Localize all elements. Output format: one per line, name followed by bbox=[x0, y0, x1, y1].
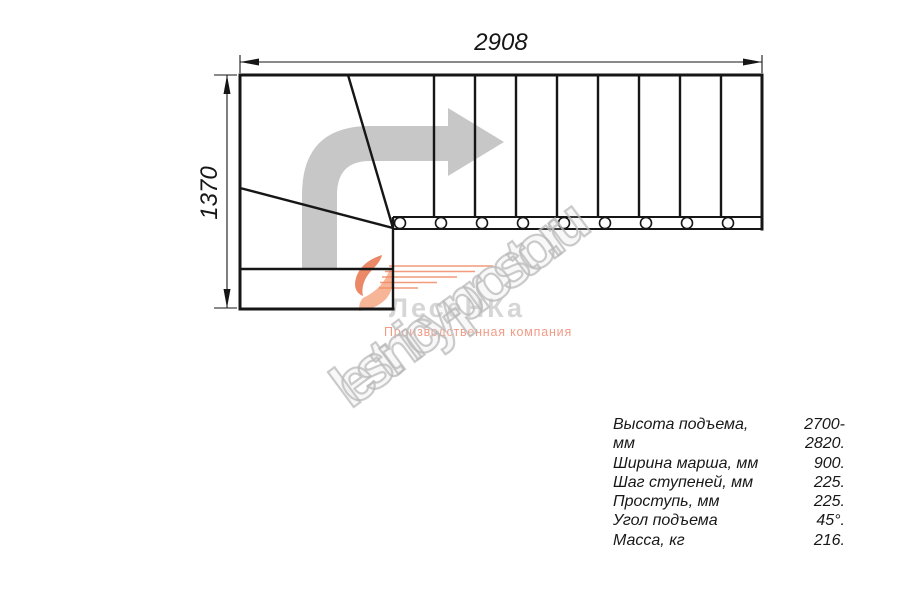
top-dimension bbox=[240, 55, 762, 73]
top-dimension-label: 2908 bbox=[401, 30, 601, 56]
spec-value: 2700-2820. bbox=[768, 415, 845, 454]
left-dimension-label: 1370 bbox=[197, 93, 223, 293]
balusters bbox=[395, 218, 734, 229]
spec-label: Шаг ступеней, мм bbox=[613, 473, 753, 492]
staircase-drawing-page: ЛесеНКа Производственная компания bbox=[0, 0, 900, 600]
spec-value: 900. bbox=[814, 454, 845, 473]
baluster-strip bbox=[393, 217, 762, 229]
spec-value: 216. bbox=[814, 531, 845, 550]
spec-label: Ширина марша, мм bbox=[613, 454, 758, 473]
spec-row: Ширина марша, мм 900. bbox=[613, 454, 845, 473]
spec-label: Проступь, мм bbox=[613, 492, 719, 511]
spec-row: Угол подъема 45°. bbox=[613, 511, 845, 530]
spec-row: Высота подъема, мм 2700-2820. bbox=[613, 415, 845, 454]
spec-value: 45°. bbox=[816, 511, 845, 530]
spec-label: Высота подъема, мм bbox=[613, 415, 768, 454]
spec-row: Шаг ступеней, мм 225. bbox=[613, 473, 845, 492]
spec-row: Масса, кг 216. bbox=[613, 531, 845, 550]
spec-label: Масса, кг bbox=[613, 531, 685, 550]
specs-table: Высота подъема, мм 2700-2820. Ширина мар… bbox=[613, 415, 845, 550]
spec-label: Угол подъема bbox=[613, 511, 718, 530]
spec-value: 225. bbox=[814, 492, 845, 511]
spec-row: Проступь, мм 225. bbox=[613, 492, 845, 511]
spec-value: 225. bbox=[814, 473, 845, 492]
direction-arrow-icon bbox=[302, 108, 504, 269]
